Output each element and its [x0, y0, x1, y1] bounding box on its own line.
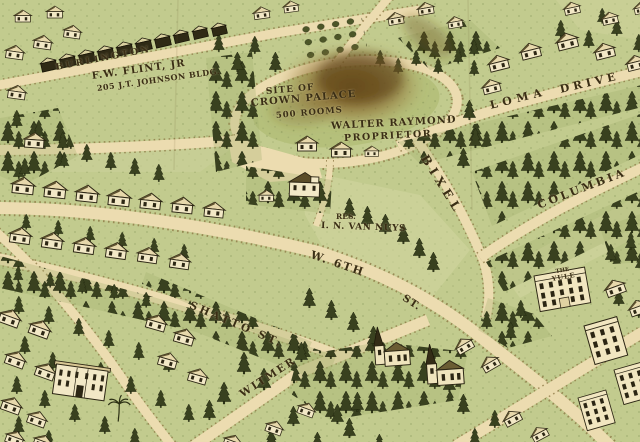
map-artwork — [0, 0, 640, 442]
birdseye-map: BURLINGTON F.W. FLINT, JR 205 J.T. JOHNS… — [0, 0, 640, 442]
label-residence-line1: RES. — [336, 213, 356, 221]
